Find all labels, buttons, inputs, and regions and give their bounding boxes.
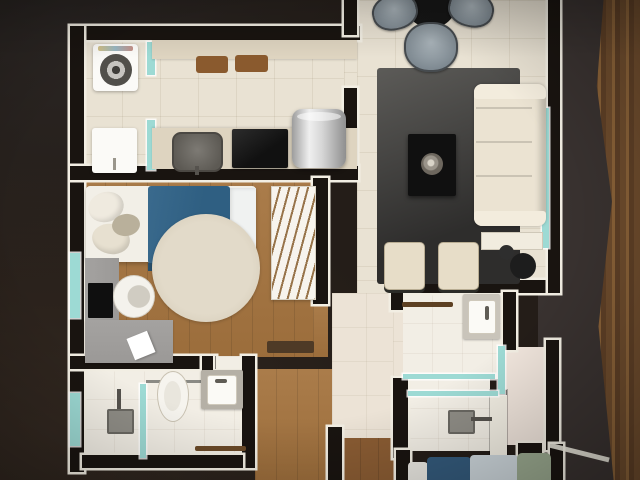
laundry-sink bbox=[92, 128, 137, 173]
vanity-1-faucet bbox=[215, 379, 227, 383]
wall-living-right bbox=[548, 0, 560, 293]
wall-bathroom-2-right bbox=[503, 292, 516, 350]
washing-machine-drum bbox=[100, 54, 132, 86]
floor-right-nook bbox=[505, 347, 546, 445]
wall-bathroom-1-right bbox=[242, 356, 255, 468]
plant-large bbox=[510, 253, 536, 279]
toilet-1-seat bbox=[164, 381, 181, 411]
floor-bedroom-doorway bbox=[313, 302, 328, 357]
shower-glass-bathroom-2-top bbox=[403, 374, 495, 379]
kitchen-faucet bbox=[195, 166, 199, 175]
floor-bathroom-2-doorway bbox=[393, 307, 403, 379]
wall-kitchen-divider-top bbox=[344, 0, 357, 35]
sofa-armrest-bottom bbox=[474, 211, 546, 226]
shower-pipe-1 bbox=[117, 389, 121, 411]
coffee-table bbox=[408, 134, 456, 196]
bed-2-blue-blanket bbox=[427, 457, 471, 480]
wardrobe-bench bbox=[267, 341, 314, 353]
floor-hallway-tile bbox=[332, 293, 393, 439]
round-rug bbox=[152, 214, 260, 322]
floor-bedroom-2 bbox=[342, 438, 396, 480]
armchair-2 bbox=[438, 242, 479, 290]
shower-pipe-2 bbox=[471, 417, 492, 421]
shower-head-1 bbox=[107, 409, 134, 434]
cooktop bbox=[232, 129, 288, 168]
dining-chair-bottom bbox=[404, 22, 458, 72]
laundry-sink-drain bbox=[113, 158, 116, 170]
shower-glass-bathroom-2-vertical bbox=[498, 346, 505, 394]
bed-2-sheet-mid bbox=[470, 455, 518, 480]
vanity-1 bbox=[201, 370, 243, 409]
wall-bathroom-2-left-lower bbox=[393, 378, 408, 458]
floor-plan-photo bbox=[0, 0, 640, 480]
towel-bar-2 bbox=[402, 302, 453, 307]
washing-machine-panel bbox=[98, 46, 133, 51]
cutting-board-2 bbox=[235, 55, 268, 72]
towel-bar-1 bbox=[195, 446, 246, 451]
shower-glass-bathroom-1 bbox=[140, 384, 146, 458]
floor-hallway-wood bbox=[255, 369, 332, 480]
vanity-2 bbox=[463, 294, 500, 339]
wall-top bbox=[70, 26, 360, 40]
shower-head-2 bbox=[448, 410, 475, 434]
wall-bathroom-1-bottom bbox=[82, 455, 243, 468]
bed-2-sheet-left bbox=[408, 462, 428, 480]
vanity-2-sink bbox=[468, 300, 496, 334]
steel-cylinder-appliance bbox=[292, 109, 346, 168]
bed-2-green-pillow bbox=[517, 453, 551, 480]
open-wardrobe bbox=[271, 186, 316, 300]
washing-machine bbox=[93, 44, 138, 91]
vanity-2-faucet bbox=[485, 306, 489, 320]
shower-partition-wall bbox=[490, 390, 507, 464]
egg-chair bbox=[113, 275, 155, 318]
sofa-armrest-top bbox=[474, 84, 546, 99]
cutting-board-1 bbox=[196, 56, 228, 73]
tv bbox=[88, 283, 113, 318]
wall-bedroom-2-left bbox=[328, 427, 342, 480]
floor-bathroom-1-doorway bbox=[215, 356, 242, 370]
steel-cylinder-lid bbox=[297, 112, 341, 121]
wall-outer-right-lower bbox=[546, 340, 559, 450]
shower-glass-bathroom-2-bottom bbox=[408, 391, 498, 396]
sofa bbox=[474, 84, 546, 226]
kitchen-sink bbox=[172, 132, 223, 172]
window-bathroom-1 bbox=[70, 393, 80, 446]
table-ornament bbox=[421, 153, 443, 175]
armchair-1 bbox=[384, 242, 425, 290]
window-bedroom-1 bbox=[70, 253, 80, 318]
sofa-cushions bbox=[476, 101, 532, 209]
